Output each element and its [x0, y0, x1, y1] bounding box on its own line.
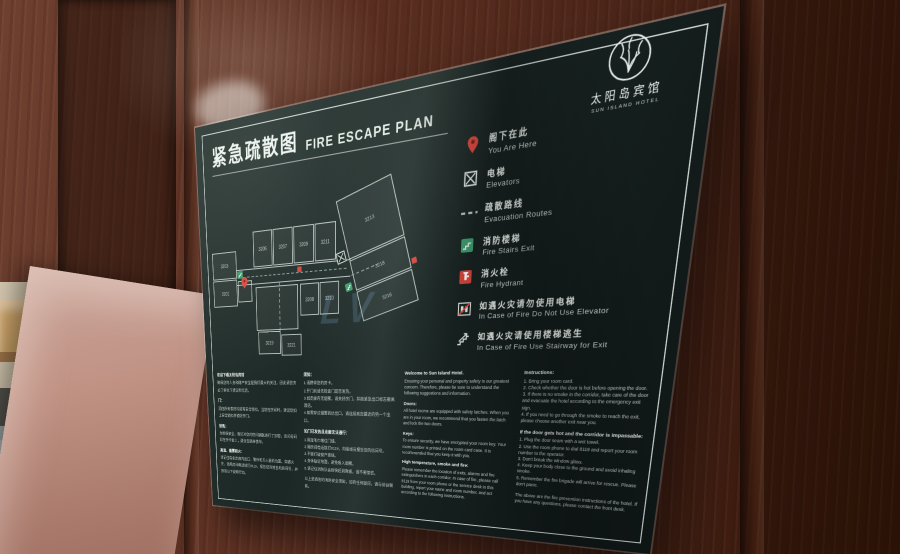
- room-number: 3208: [305, 296, 314, 302]
- info-column-en: Welcome to Sun Island Hotel.Ensuring you…: [400, 370, 515, 530]
- evacuation-route-icon: [460, 203, 478, 218]
- elevator-marker: [336, 251, 346, 264]
- elevator-icon: [461, 169, 479, 187]
- legend-item: 如遇火灾请勿使用电梯In Case of Fire Do Not Use Ele…: [455, 288, 670, 322]
- room-number: 3203: [221, 263, 229, 269]
- legend-item: 消火栓Fire Hydrant: [456, 252, 674, 291]
- stairway-exit-icon: [454, 332, 471, 346]
- paragraph: 须知：1.请携带您的房卡。2.开门前请先检查门是否发热。3.如走廊内无烟雾，请关…: [304, 371, 397, 428]
- room-number: 3211: [321, 238, 330, 245]
- room-number: 3205: [258, 245, 267, 252]
- title-chinese: 紧急疏散图: [211, 124, 298, 173]
- room-number: 3210: [325, 295, 334, 301]
- paragraph: 钥匙：为确保安全，我们对您的房间钥匙进行了加密，房间号码印在房卡套上，建议您随身…: [219, 423, 298, 448]
- legend-label: 疏散路线Evacuation Routes: [484, 192, 554, 224]
- info-column-en: Instructions:1. Bring your room card.2. …: [512, 369, 657, 544]
- plan-rotated-wing: 321332183216: [325, 171, 425, 325]
- room: [256, 284, 298, 330]
- info-column-zh: 须知：1.请携带您的房卡。2.开门前请先检查门是否发热。3.如走廊内无烟雾，请关…: [304, 371, 397, 518]
- paragraph: 以上是酒店的消防安全须知，如有任何疑问，请与前台联系。: [305, 476, 394, 498]
- paragraph: 如门已发热且走廊无法通行：1.用湿毛巾堵住门缝。2.用房间电话拨打8119，向接…: [304, 428, 395, 478]
- hydrant-marker: [297, 266, 301, 272]
- legend-label: 电梯Elevators: [486, 161, 521, 190]
- no-elevator-icon: [455, 301, 472, 316]
- floor-plan-area: 3203320132053207320932113208321032193221…: [207, 143, 451, 367]
- legend-label: 消火栓Fire Hydrant: [480, 264, 524, 290]
- legend-item: 如遇火灾请使用楼梯逃生In Case of Fire Use Stairway …: [453, 324, 665, 352]
- info-column-zh: 欢迎下榻太阳岛宾馆确保您的人身和财产安全是我们最大的关注，因此请您务必了解以下建…: [217, 371, 299, 508]
- stairs-marker: [237, 271, 243, 279]
- evacuation-route: [239, 268, 349, 278]
- paragraph: 高温、烟雾和火：请记住每条走廊内出口、警铃和灭火器的位置。如遇火灾，请用房间电话…: [220, 447, 298, 480]
- stairs-marker: [345, 282, 353, 292]
- legend-label: 如遇火灾请使用楼梯逃生In Case of Fire Use Stairway …: [477, 326, 610, 352]
- legend-label: 消防楼梯Fire Stairs Exit: [482, 229, 536, 257]
- paragraph: 门：酒店所有客房均装有安全锁扣。当您在房间时，建议您扣上安全锁扣并锁好房门。: [218, 398, 297, 422]
- hydrant-marker: [411, 256, 417, 264]
- paragraph: 欢迎下榻太阳岛宾馆确保您的人身和财产安全是我们最大的关注，因此请您务必了解以下建…: [217, 371, 297, 394]
- room-number: 3201: [222, 291, 230, 297]
- legend: 阁下在此You Are Here电梯Elevators疏散路线Evacuatio…: [453, 94, 695, 361]
- room-number: 3221: [287, 342, 296, 348]
- fire-hydrant-icon: [457, 269, 475, 285]
- wood-panel-right: [764, 0, 900, 554]
- plan-main-wing: 3203320132053207320932113208321032193221: [212, 220, 349, 357]
- legend-label: 阁下在此You Are Here: [488, 122, 538, 155]
- you-are-here-icon: [463, 134, 482, 156]
- paragraph: If the door gets hot and the corridor is…: [516, 429, 649, 497]
- paragraph: Keys:To ensure security, we have encrypt…: [402, 431, 510, 462]
- room-number: 3207: [279, 243, 288, 250]
- fire-stairs-icon: [458, 237, 476, 254]
- lily-flower-logo-icon: [604, 26, 657, 88]
- room-number: 3209: [299, 241, 308, 248]
- room-number: 3219: [266, 340, 275, 346]
- photo-scene: 太阳岛宾馆 SUN ISLAND HOTEL 紧急疏散图 FIRE ESCAPE…: [0, 0, 900, 554]
- paragraph: Welcome to Sun Island Hotel.Ensuring you…: [404, 370, 515, 398]
- wood-groove-right: [740, 0, 764, 554]
- floor-plan: 3203320132053207320932113208321032193221…: [207, 143, 451, 367]
- paragraph: Instructions:1. Bring your room card.2. …: [520, 369, 657, 428]
- paragraph: High temperature, smoke and fire:Please …: [401, 460, 508, 505]
- paragraph: Doors:All hotel rooms are equipped with …: [403, 401, 513, 430]
- legend-label: 如遇火灾请勿使用电梯In Case of Fire Do Not Use Ele…: [479, 292, 612, 321]
